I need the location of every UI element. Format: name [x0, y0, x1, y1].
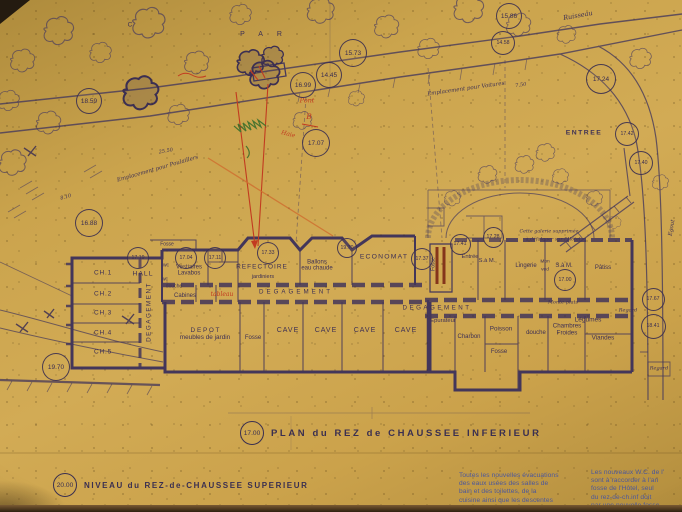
room-chambres-froides: Chambres Froides	[553, 323, 582, 336]
elevation-17-24: 17.24	[586, 64, 616, 94]
room-douche-1: douche	[166, 284, 182, 289]
room-cave-3: CAVE	[354, 327, 377, 335]
elevation-15-86: 15.86	[496, 3, 522, 29]
elevation-17-11: 17.11	[204, 247, 226, 269]
plan-title: PLAN du REZ de CHAUSSEE INFERIEUR	[271, 428, 542, 439]
room-epurateur: Epurateur	[430, 318, 455, 324]
room-legumes: Légumes	[575, 316, 602, 323]
red-fosse-bars	[437, 247, 444, 284]
elevation-19-70-b: 19.70	[337, 238, 357, 258]
elevation-17-42: 17.42	[615, 122, 639, 146]
paper-crease	[0, 452, 682, 454]
note-line: Toutes les nouvelles évacuations	[459, 472, 593, 480]
room-fosse-right: Fosse	[491, 349, 507, 355]
survey-lines	[296, 2, 505, 243]
room-cave-4: CAVE	[395, 327, 418, 335]
parc-letter-c: C	[128, 21, 133, 28]
elevation-17-19: 17.19	[127, 247, 149, 269]
niveau-title: NIVEAU du REZ-de-CHAUSSEE SUPERIEUR	[84, 481, 308, 490]
room-lingerie: Lingerie	[515, 263, 536, 269]
elevation-14-58: 14.58	[491, 31, 515, 55]
elevation-17-00: 17.00	[554, 269, 576, 291]
plan-title-block: 17.00 PLAN du REZ de CHAUSSEE INFERIEUR	[240, 421, 542, 445]
room-ch2: CH.2	[94, 290, 112, 297]
galerie-note: Cette galerie supprimée	[520, 229, 579, 234]
defalquer-note: à défalquer sur l'Hôtel	[526, 237, 581, 242]
note-line: du rez-de-ch.inf doit	[591, 494, 682, 502]
elevation-17-28: 17.28	[483, 227, 504, 248]
elevation-17-41: 17.41	[450, 234, 471, 255]
room-charbon: Charbon	[457, 334, 480, 340]
room-economat: ECONOMAT	[360, 253, 408, 260]
niveau-title-block: 20.00 NIVEAU du REZ-de-CHAUSSEE SUPERIEU…	[53, 473, 308, 497]
room-ch1: CH.1	[94, 269, 112, 276]
room-entree: Entrée	[461, 254, 478, 260]
elevation-17-67: 17.67	[642, 288, 665, 311]
orange-line	[208, 158, 333, 236]
room-wc-2: wc	[162, 277, 168, 282]
note-line: bain et des toilettes, de la	[459, 488, 593, 496]
room-ch3: CH.3	[94, 309, 112, 316]
room-hall: HALL	[132, 270, 153, 277]
room-ch4: CH.4	[94, 329, 112, 336]
plan-elevation-circle: 17.00	[240, 421, 264, 445]
room-refectoire: REFECTOIRE	[236, 263, 288, 270]
regard-label-1: Regard	[619, 308, 638, 313]
room-patiss: Pâtiss	[595, 265, 611, 271]
plan-scan: CH.1CH.2CH.3CH.4CH.5DEGAGEMENTHALLVestia…	[0, 0, 682, 512]
room-cabines: Cabines	[174, 293, 196, 299]
note-line: fosse de l'Hôtel, seul	[591, 485, 682, 493]
room-ballons: Ballons eau chaude	[301, 260, 332, 273]
room-ved: ved	[541, 267, 549, 272]
room-viandes: Viandes	[592, 336, 615, 343]
trees	[0, 0, 668, 229]
elevation-17-37: 17.37	[411, 248, 433, 270]
room-poisson: Poisson	[490, 327, 512, 334]
entree-upper: ENTREE	[566, 129, 603, 136]
pont-b-note: B	[306, 113, 312, 121]
elevation-17-40: 17.40	[629, 151, 653, 175]
corridor-center: DEGAGEMENT	[259, 290, 333, 297]
niveau-elevation-circle: 20.00	[53, 473, 77, 497]
room-wc-1: wc	[163, 263, 169, 268]
tableau-note: tableau	[211, 292, 234, 298]
green-hedge-line	[234, 120, 266, 158]
corridor-left: DEGAGEMENT	[147, 282, 154, 342]
room-ch5: CH.5	[94, 348, 112, 355]
elevation-16-99: 16.99	[290, 72, 316, 98]
room-mon: Mon	[540, 259, 549, 264]
room-cave-1: CAVE	[277, 327, 300, 335]
note-line: Les nouveaux W.C. de l'	[591, 469, 682, 477]
elevation-18-59: 18.59	[76, 88, 102, 114]
room-fosse-terrace: Fosse	[160, 242, 174, 247]
room-fosse-center: Fosse	[245, 335, 261, 341]
parc-letters: PAR	[240, 31, 296, 39]
note-wc-raccord: Les nouveaux W.C. de l' sont à raccorder…	[591, 469, 682, 510]
room-douche-2: douche	[526, 330, 546, 336]
room-sam-1: S.à M.	[479, 258, 496, 264]
dense-bush	[123, 46, 283, 109]
room-cave-2: CAVE	[315, 327, 338, 335]
photo-bottom-edge	[0, 505, 682, 512]
elevation-16-88: 16.88	[75, 209, 103, 237]
elevation-17-04: 17.04	[175, 247, 197, 269]
elevation-17-07: 17.07	[302, 129, 330, 157]
room-depot: D E P O T meubles de jardin	[180, 328, 230, 342]
note-line: des eaux usées des salles de	[459, 480, 593, 488]
room-jardiniers: jardiniers	[252, 275, 274, 281]
elevation-18-41: 18.41	[641, 314, 666, 339]
note-line: sont à raccorder à l'an	[591, 477, 682, 485]
regard-label-2: Regard	[650, 366, 669, 371]
note-line: cuisine ainsi que les descentes	[459, 497, 593, 505]
monte-plats-note: Monte-plats	[548, 300, 578, 305]
corridor-right: DEGAGEMENT	[402, 306, 471, 313]
elevation-17-33: 17.33	[257, 242, 279, 264]
elevation-19-70-a: 19.70	[42, 353, 70, 381]
elevation-14-45: 14.45	[316, 62, 342, 88]
elevation-15-73: 15.73	[339, 39, 367, 67]
pont-note: Pont	[300, 97, 315, 104]
